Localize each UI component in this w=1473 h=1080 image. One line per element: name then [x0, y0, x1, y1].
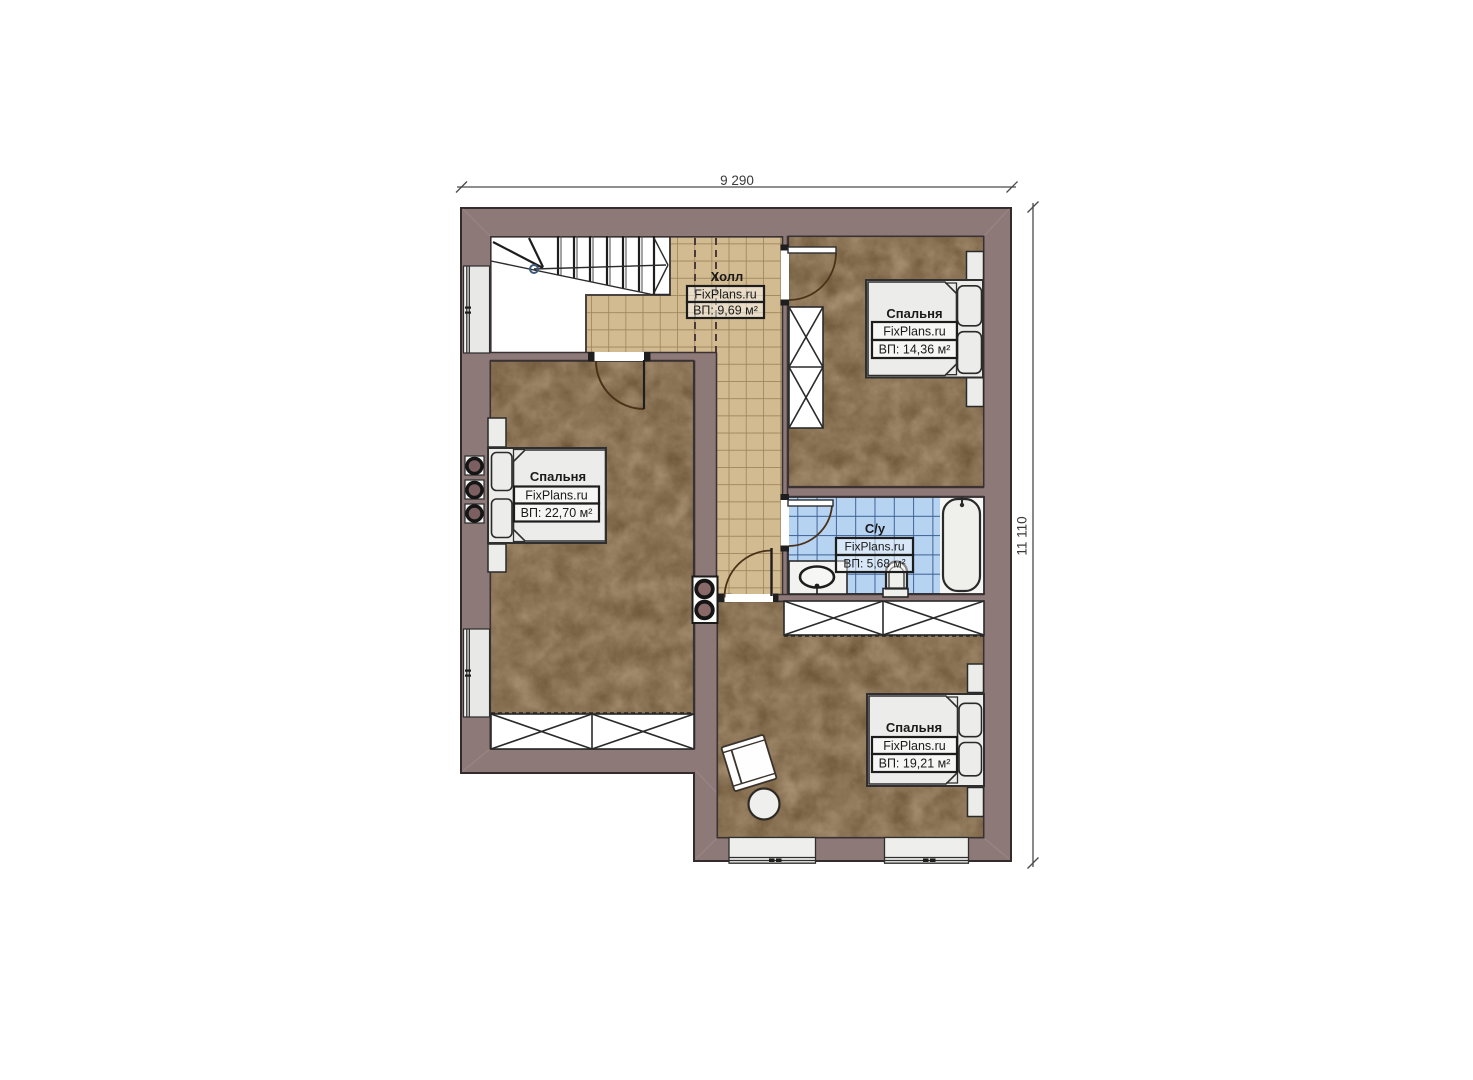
svg-text:Спальня: Спальня	[886, 720, 942, 735]
svg-text:С/у: С/у	[865, 521, 886, 536]
svg-text:FixPlans.ru: FixPlans.ru	[525, 489, 588, 503]
svg-text:9 290: 9 290	[720, 173, 754, 188]
svg-text:Спальня: Спальня	[530, 469, 586, 484]
svg-text:ВП: 19,21 м²: ВП: 19,21 м²	[879, 757, 951, 771]
svg-text:ВП: 22,70 м²: ВП: 22,70 м²	[521, 506, 593, 520]
svg-text:Спальня: Спальня	[886, 306, 942, 321]
svg-text:ВП: 14,36 м²: ВП: 14,36 м²	[879, 343, 951, 357]
svg-text:FixPlans.ru: FixPlans.ru	[694, 288, 757, 302]
svg-text:FixPlans.ru: FixPlans.ru	[883, 325, 946, 339]
svg-text:FixPlans.ru: FixPlans.ru	[883, 739, 946, 753]
svg-text:Холл: Холл	[711, 269, 744, 284]
svg-text:ВП: 5,68 м²: ВП: 5,68 м²	[843, 557, 905, 571]
svg-text:11 110: 11 110	[1015, 516, 1030, 555]
svg-text:FixPlans.ru: FixPlans.ru	[844, 540, 904, 554]
svg-text:ВП: 9,69 м²: ВП: 9,69 м²	[693, 304, 758, 318]
